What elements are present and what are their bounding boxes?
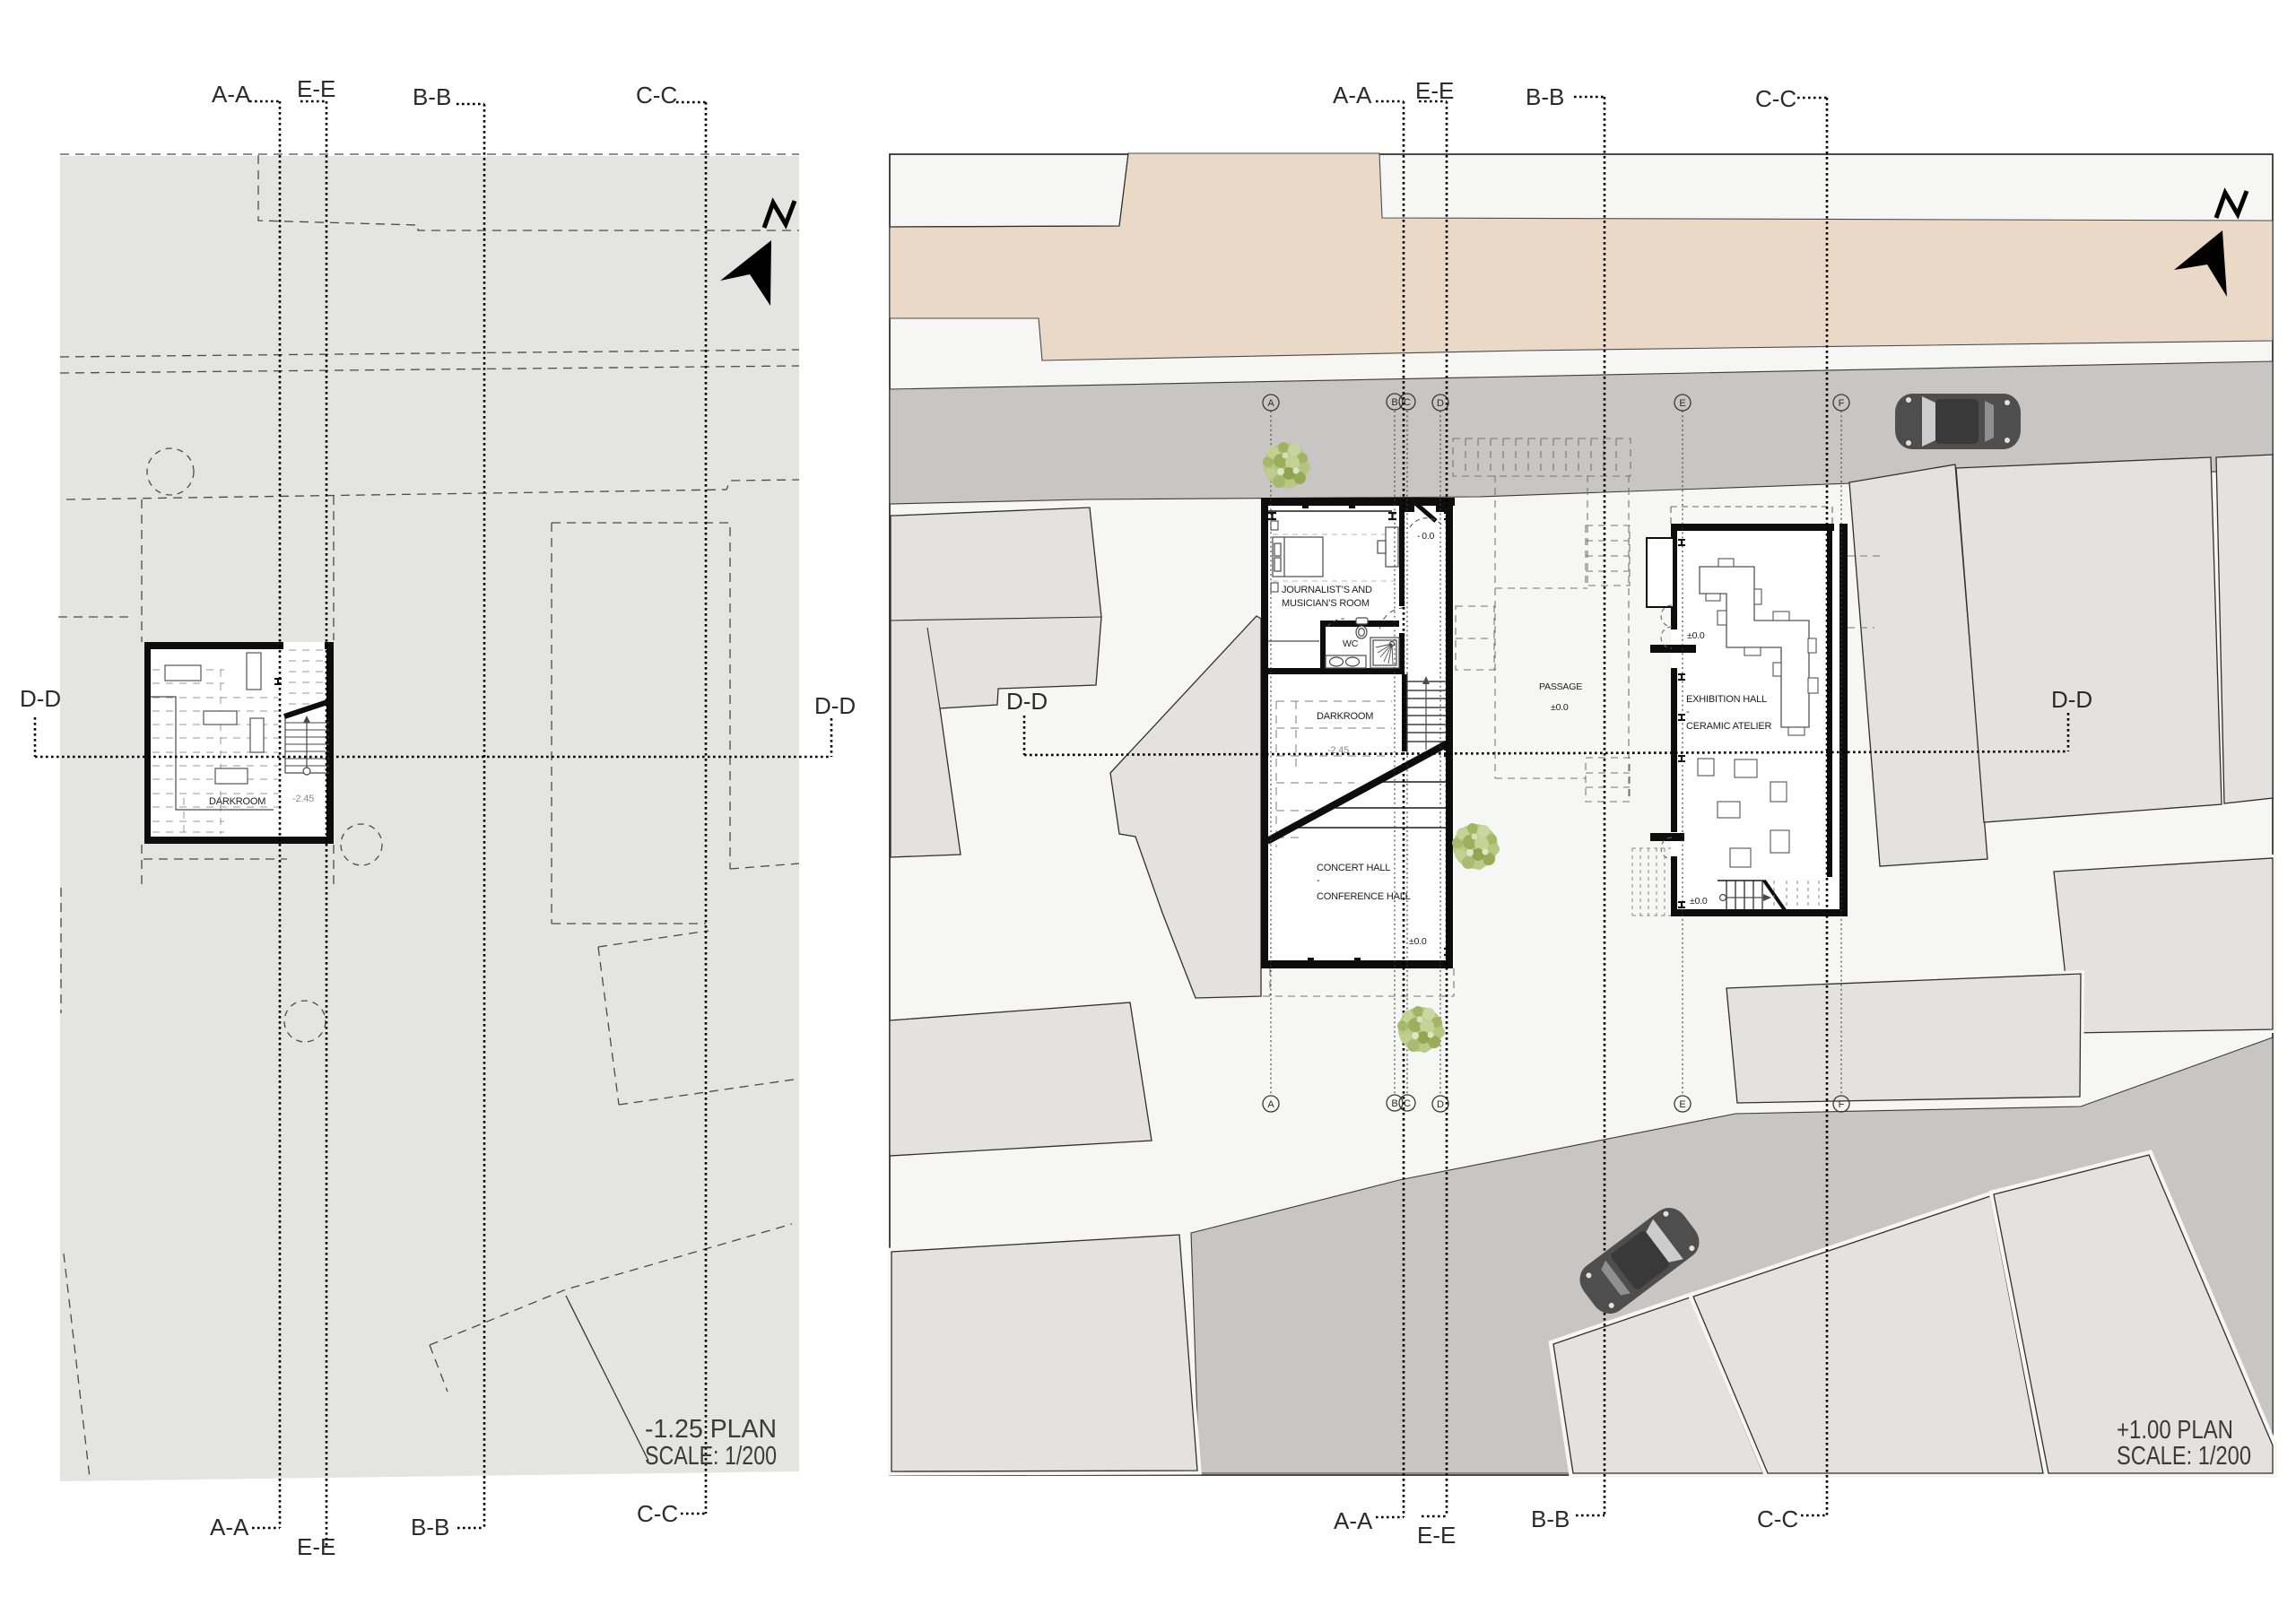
svg-text:B-B: B-B: [1531, 1506, 1570, 1532]
svg-text:A-A: A-A: [212, 81, 251, 108]
svg-text:D-D: D-D: [2051, 686, 2092, 713]
svg-text:C-C: C-C: [1755, 85, 1796, 112]
svg-text:CONCERT HALL: CONCERT HALL: [1317, 863, 1390, 873]
svg-text:D: D: [1437, 398, 1444, 409]
svg-text:-: -: [1686, 707, 1690, 717]
svg-text:E: E: [1679, 1099, 1685, 1110]
svg-text:C-C: C-C: [636, 82, 677, 108]
svg-text:D: D: [1437, 1099, 1444, 1110]
svg-text:MUSICIAN’S ROOM: MUSICIAN’S ROOM: [1282, 598, 1370, 609]
svg-text:JOURNALIST’S AND: JOURNALIST’S AND: [1282, 585, 1372, 595]
svg-text:E-E: E-E: [297, 75, 335, 102]
svg-text:-: -: [1317, 875, 1320, 886]
svg-text:F: F: [1839, 398, 1845, 409]
svg-text:‑ 0.0: ‑ 0.0: [1417, 531, 1435, 542]
svg-text:C-C: C-C: [637, 1500, 678, 1527]
svg-text:F: F: [1839, 1099, 1845, 1110]
svg-text:D-D: D-D: [1006, 688, 1048, 715]
svg-text:EXHIBITION HALL: EXHIBITION HALL: [1686, 694, 1767, 705]
svg-text:SCALE: 1/200: SCALE: 1/200: [2117, 1442, 2251, 1471]
svg-text:SCALE: 1/200: SCALE: 1/200: [645, 1442, 777, 1471]
svg-text:A-A: A-A: [1333, 82, 1372, 108]
svg-text:+1.00 PLAN: +1.00 PLAN: [2117, 1416, 2233, 1445]
svg-text:B-B: B-B: [413, 83, 451, 110]
svg-text:D-D: D-D: [814, 692, 856, 719]
svg-text:E: E: [1679, 398, 1685, 409]
svg-text:±0.0: ±0.0: [1409, 936, 1427, 947]
svg-text:CONFERENCE HALL: CONFERENCE HALL: [1317, 891, 1411, 902]
svg-text:E-E: E-E: [297, 1533, 335, 1560]
svg-text:A: A: [1267, 1099, 1274, 1110]
svg-text:-2.45: -2.45: [292, 794, 314, 804]
svg-text:DARKROOM: DARKROOM: [1317, 711, 1373, 722]
svg-text:B-B: B-B: [411, 1514, 449, 1541]
svg-text:PASSAGE: PASSAGE: [1539, 681, 1582, 692]
svg-text:C-C: C-C: [1757, 1506, 1798, 1532]
svg-text:DARKROOM: DARKROOM: [209, 796, 265, 807]
svg-text:±0.0: ±0.0: [1687, 630, 1705, 641]
svg-text:±0.0: ±0.0: [1551, 702, 1569, 713]
svg-text:E-E: E-E: [1415, 77, 1454, 104]
svg-text:B-B: B-B: [1526, 83, 1564, 110]
svg-text:B: B: [1391, 397, 1397, 408]
svg-text:B: B: [1391, 1098, 1397, 1109]
svg-text:A-A: A-A: [1334, 1507, 1373, 1534]
svg-text:E-E: E-E: [1417, 1522, 1456, 1549]
svg-text:WC: WC: [1343, 638, 1359, 649]
svg-text:CERAMIC ATELIER: CERAMIC ATELIER: [1686, 721, 1771, 732]
svg-text:D-D: D-D: [20, 685, 61, 712]
svg-text:A-A: A-A: [210, 1514, 249, 1541]
svg-text:A: A: [1267, 398, 1274, 409]
svg-text:±0.0: ±0.0: [1690, 896, 1708, 907]
svg-text:-1.25 PLAN: -1.25 PLAN: [645, 1415, 777, 1444]
